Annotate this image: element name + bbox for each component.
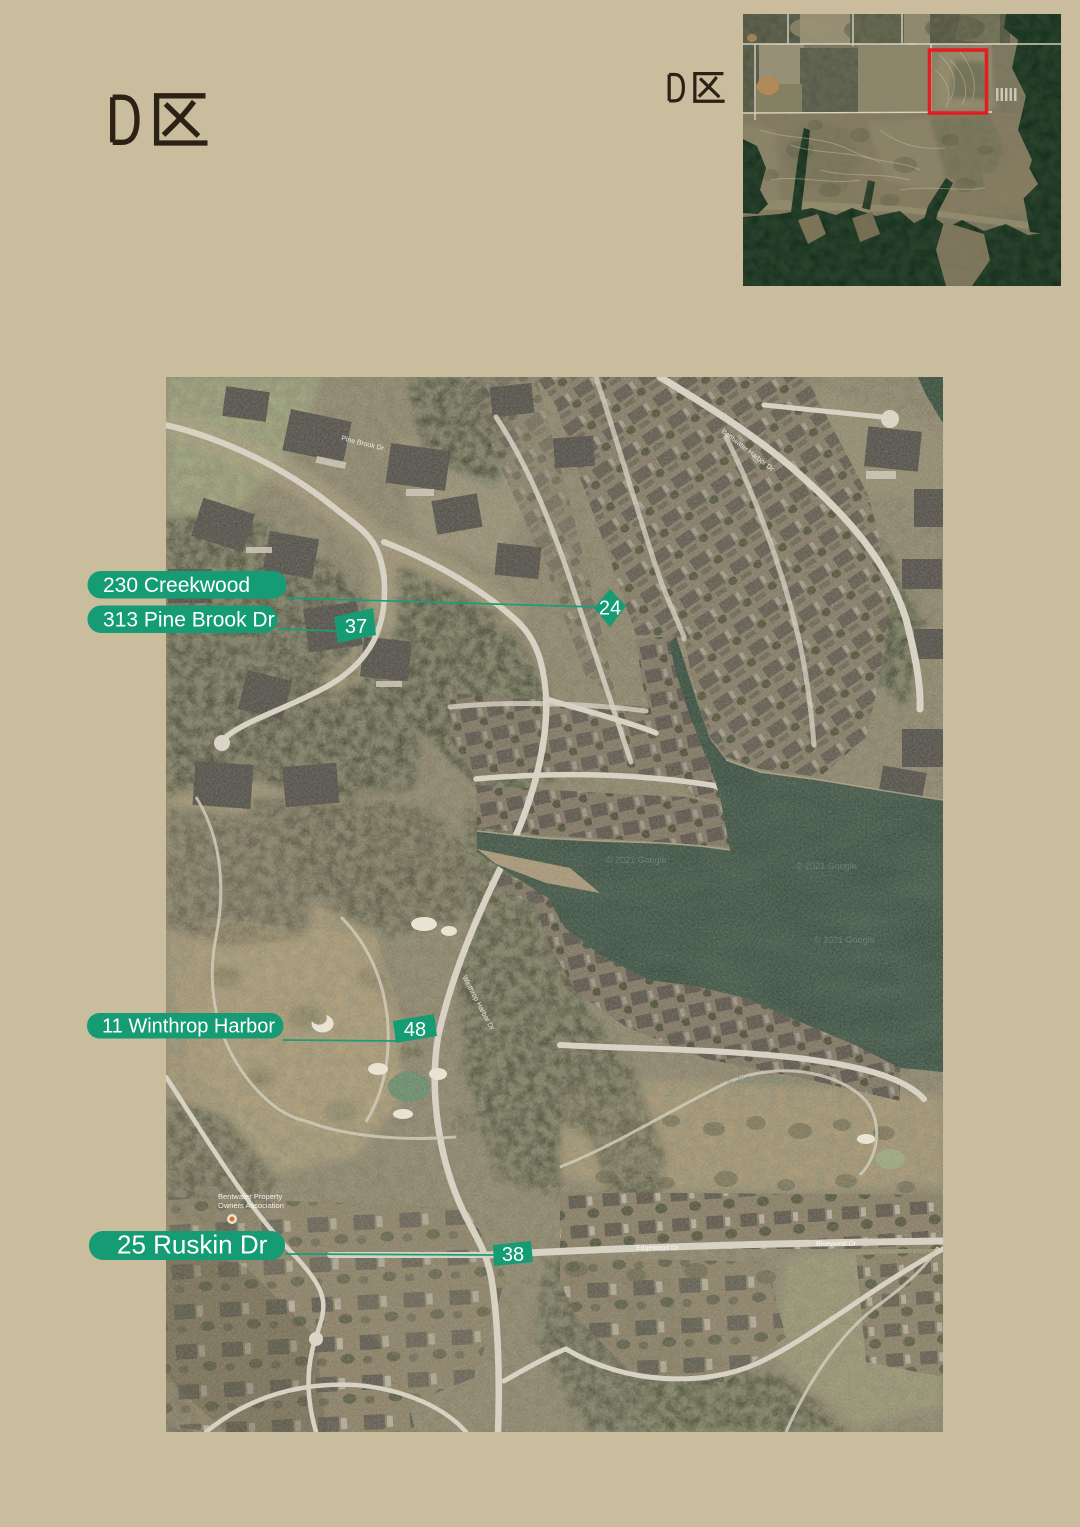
svg-text:25 Ruskin Dr: 25 Ruskin Dr [117, 1230, 268, 1260]
svg-text:37: 37 [345, 616, 367, 638]
svg-text:230 Creekwood: 230 Creekwood [103, 574, 250, 597]
svg-text:313 Pine Brook Dr: 313 Pine Brook Dr [103, 609, 275, 632]
svg-text:24: 24 [599, 598, 621, 620]
svg-text:11 Winthrop Harbor: 11 Winthrop Harbor [102, 1016, 275, 1038]
svg-text:38: 38 [502, 1244, 524, 1266]
svg-text:48: 48 [404, 1019, 426, 1041]
